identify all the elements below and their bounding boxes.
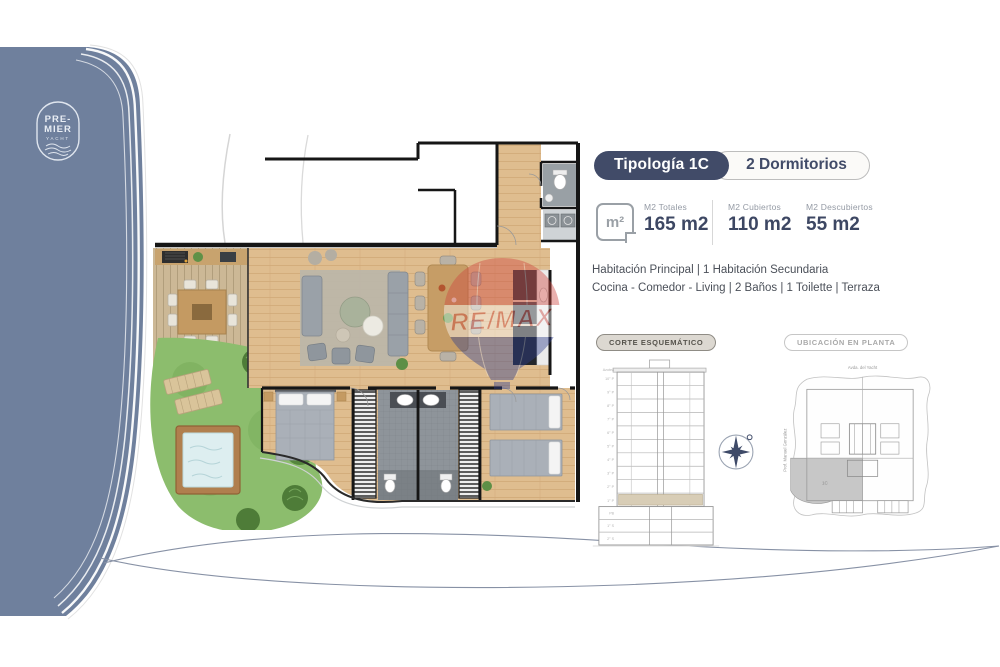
outdoor-sink xyxy=(220,252,236,262)
floor-label: Azotea xyxy=(603,368,615,372)
floor-label: 4° P xyxy=(607,458,614,462)
chaise xyxy=(302,276,322,336)
stat-label: M2 Cubiertos xyxy=(728,202,791,212)
stat-divider xyxy=(712,200,713,245)
balcony-edge-line-2 xyxy=(301,135,308,243)
toilet xyxy=(441,480,451,493)
stat-descubiertos: M2 Descubiertos 55 m2 xyxy=(806,202,873,236)
closet xyxy=(459,390,479,498)
plant xyxy=(482,481,492,491)
toilet xyxy=(385,480,395,493)
logo-line3: YACHT xyxy=(46,136,70,141)
floor-label: 9° P xyxy=(607,391,614,395)
floor-label: 3° P xyxy=(607,471,614,475)
pouf xyxy=(325,249,337,261)
highlighted-floor xyxy=(619,494,703,505)
entry-hall-floor xyxy=(497,144,541,248)
pillow xyxy=(549,442,560,474)
m2-icon: m² xyxy=(596,203,634,241)
floor-label: 7° P xyxy=(607,418,614,422)
jacuzzi xyxy=(176,426,240,494)
floor-label: 5° P xyxy=(607,444,614,448)
pouf xyxy=(308,251,322,265)
bathroom-sink xyxy=(423,395,439,406)
floor-label: 2° P xyxy=(607,485,614,489)
floor-label: 1° S xyxy=(607,524,614,528)
stat-value: 165 m2 xyxy=(644,214,708,236)
bathroom-1 xyxy=(378,390,418,500)
floor-label: 6° P xyxy=(607,431,614,435)
street-label-top: Avda. del Yacht xyxy=(848,365,878,370)
remax-text: RE/MAX xyxy=(450,303,555,336)
floor-label: 1° P xyxy=(607,499,614,503)
nightstand xyxy=(264,392,273,401)
armchair xyxy=(307,343,327,361)
floor-label: 2° S xyxy=(607,537,614,541)
closet xyxy=(354,390,376,498)
info-panel: Tipología 1C 2 Dormitorios m² M2 Totales… xyxy=(592,145,972,575)
typology-header: Tipología 1C 2 Dormitorios xyxy=(594,151,870,180)
balcony-edge-line xyxy=(222,134,230,243)
armchair xyxy=(355,345,375,363)
floor-label: 10° P xyxy=(605,377,614,381)
bedrooms-pill: 2 Dormitorios xyxy=(713,151,870,180)
amenities-description: Habitación Principal | 1 Habitación Secu… xyxy=(592,262,880,298)
corte-section-label: CORTE ESQUEMÁTICO xyxy=(596,334,716,351)
stat-label: M2 Descubiertos xyxy=(806,202,873,212)
unit-label: 1C xyxy=(822,481,829,486)
stat-cubiertos: M2 Cubiertos 110 m2 xyxy=(728,202,791,236)
pillow xyxy=(279,394,303,405)
stat-totales: M2 Totales 165 m2 xyxy=(644,202,708,236)
sink xyxy=(545,194,553,202)
nightstand xyxy=(337,392,346,401)
bathroom-sink xyxy=(397,395,413,406)
typology-pill: Tipología 1C xyxy=(594,151,729,180)
laundry xyxy=(543,210,576,241)
stat-label: M2 Totales xyxy=(644,202,708,212)
toilette xyxy=(543,164,576,206)
floor-label: PB xyxy=(609,511,614,515)
ubicacion-section-label: UBICACIÓN EN PLANTA xyxy=(784,334,908,351)
building-section-diagram: Azotea 10° P 9° P 8° P 7° P 6° P 5° P 4°… xyxy=(592,359,720,547)
floor-plan: RE/MAX xyxy=(150,130,580,530)
stat-value: 110 m2 xyxy=(728,214,791,236)
stat-value: 55 m2 xyxy=(806,214,873,236)
armchair xyxy=(332,348,350,364)
logo-line2: MIER xyxy=(44,124,72,135)
street-label-left: Prof. Manuel González xyxy=(783,428,788,471)
floor-label: 8° P xyxy=(607,404,614,408)
master-bedroom xyxy=(264,391,346,460)
plant xyxy=(396,358,408,370)
pillow xyxy=(549,396,560,428)
compass-icon xyxy=(712,428,760,476)
bathroom-2 xyxy=(418,390,458,500)
coffee-table xyxy=(363,316,383,336)
location-plan-diagram: Avda. del Yacht Prof. Manuel González 1C xyxy=(776,361,944,525)
description-line1: Habitación Principal | 1 Habitación Secu… xyxy=(592,262,880,280)
toilet xyxy=(554,175,566,190)
plant xyxy=(193,252,203,262)
pillow xyxy=(307,394,331,405)
description-line2: Cocina - Comedor - Living | 2 Baños | 1 … xyxy=(592,280,880,298)
brochure-page: PRE- MIER YACHT xyxy=(0,0,1000,667)
